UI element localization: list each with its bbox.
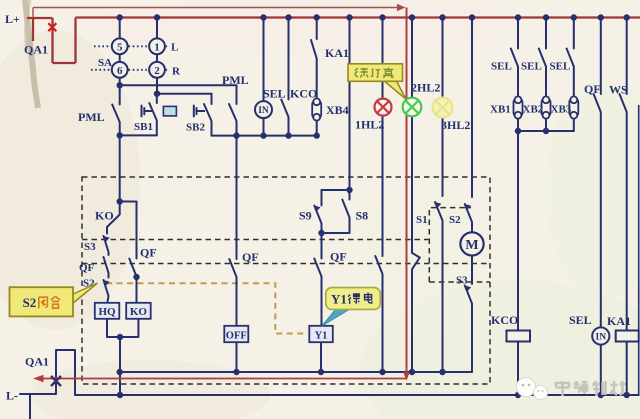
svg-text:XB4: XB4 [326,103,349,117]
svg-text:Y1: Y1 [315,330,328,341]
svg-text:XB2: XB2 [523,104,544,116]
svg-text:IN: IN [258,106,269,116]
svg-text:WS: WS [609,83,628,97]
svg-text:2HL2: 2HL2 [411,81,440,95]
svg-text:QF: QF [242,250,259,264]
svg-text:Y1: Y1 [331,292,347,307]
svg-text:SEL: SEL [569,313,592,327]
svg-text:S9: S9 [299,209,312,223]
svg-text:PML: PML [78,110,105,124]
svg-text:SB2: SB2 [186,122,205,134]
svg-text:KA1: KA1 [607,314,631,328]
svg-text:S8: S8 [356,209,369,223]
svg-text:QF: QF [79,262,95,274]
svg-text:OFF: OFF [226,330,247,341]
svg-text:SEL: SEL [491,61,512,73]
svg-text:5: 5 [117,41,123,53]
svg-text:XB3: XB3 [551,104,572,116]
svg-text:QF: QF [584,82,601,96]
svg-text:SEL: SEL [550,61,571,73]
svg-text:6: 6 [117,65,123,77]
svg-text:SEL: SEL [521,61,542,73]
svg-text:KO: KO [95,209,114,223]
svg-text:HQ: HQ [98,306,116,318]
svg-text:QF: QF [140,246,157,260]
svg-text:3HL2: 3HL2 [441,118,470,132]
svg-text:L-: L- [6,389,18,403]
svg-text:R: R [172,66,181,78]
svg-text:S2: S2 [449,214,461,226]
svg-text:L: L [171,42,178,54]
svg-text:KO: KO [130,306,148,318]
svg-text:KCO: KCO [491,313,518,327]
svg-text:S3: S3 [84,241,96,253]
svg-text:QA1: QA1 [24,43,48,57]
svg-text:1HL2: 1HL2 [355,118,384,132]
svg-text:L+: L+ [5,12,20,26]
svg-text:KCO: KCO [290,87,317,101]
svg-text:SEL: SEL [263,87,286,101]
svg-text:M: M [465,238,478,253]
svg-text:SB1: SB1 [134,121,153,133]
svg-text:S2: S2 [23,295,37,310]
svg-text:QA1: QA1 [25,355,49,369]
svg-text:S1: S1 [416,214,428,226]
svg-text:1: 1 [154,41,160,53]
svg-text:IN: IN [596,333,607,343]
svg-text:S3: S3 [456,275,468,287]
svg-text:KA1: KA1 [325,46,349,60]
svg-text:2: 2 [154,65,160,77]
svg-text:SA: SA [98,57,112,69]
svg-text:QF: QF [330,250,347,264]
svg-text:PML: PML [222,73,249,87]
svg-text:XB1: XB1 [490,104,511,116]
